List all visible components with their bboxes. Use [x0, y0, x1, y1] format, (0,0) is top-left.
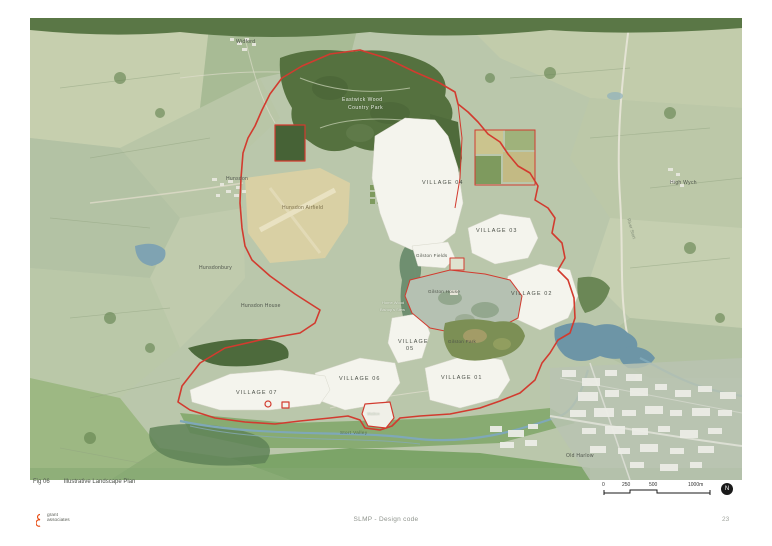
map-label-village-04: VILLAGE 04 [422, 181, 464, 187]
north-arrow-icon: N [721, 483, 733, 495]
map-label-village-03: VILLAGE 03 [476, 229, 518, 235]
northeast-farm-parcels [475, 130, 535, 185]
map-label-hunsdonbury: Hunsdonbury [199, 266, 232, 271]
map-label-village-05-line2: 05 [406, 347, 414, 353]
page-number: 23 [722, 516, 729, 523]
map-label-home-wood: Home Wood [382, 301, 404, 305]
logo-line2: associates [47, 518, 70, 523]
map-label-stort-valley: Stort Valley [340, 431, 367, 436]
map-label-hunsdon-airfield: Hunsdon Airfield [282, 206, 323, 211]
map-label-station: Station [367, 412, 379, 416]
map-label-country-park-1: Eastwick Wood [342, 98, 383, 103]
grant-associates-logo: grant associates [36, 513, 70, 527]
small-red-parcel [450, 258, 464, 270]
map-artwork [30, 18, 742, 480]
figure-title: Illustrative Landscape Plan [64, 479, 136, 485]
logo-mark-icon [36, 513, 45, 527]
map-label-gilston-fields: Gilston Fields [416, 254, 447, 259]
map-label-village-07: VILLAGE 07 [236, 391, 278, 397]
logo-text: grant associates [47, 513, 70, 524]
map-label-widford: Widford [236, 40, 255, 45]
footer-title: SLMP - Design code [0, 516, 772, 523]
figure-number: Fig 06 [33, 479, 50, 485]
map-label-village-05-line1: VILLAGE [398, 340, 429, 346]
map-label-bishops-stew: Bishop's Stew [380, 308, 405, 312]
figure-caption: Fig 06Illustrative Landscape Plan [33, 479, 135, 485]
scale-bar: 0 250 500 1000m [600, 482, 720, 498]
map-label-village-02: VILLAGE 02 [511, 292, 553, 298]
map-label-village-01: VILLAGE 01 [441, 376, 483, 382]
landscape-plan-map: Widford Hunsdon High Wych Hunsdon Airfie… [30, 18, 742, 480]
document-page: Widford Hunsdon High Wych Hunsdon Airfie… [0, 0, 772, 546]
map-label-gilston-house: Gilston House [428, 290, 460, 295]
map-label-old-harlow: Old Harlow [566, 454, 594, 459]
map-label-country-park-2: Country Park [348, 106, 383, 111]
map-label-high-wych: High Wych [670, 181, 697, 186]
map-label-hunsdon-house: Hunsdon House [241, 304, 281, 309]
map-label-gilston-park: Gilston Park [448, 340, 476, 345]
map-label-hunsdon: Hunsdon [226, 177, 248, 182]
wood-parcel-red [275, 125, 305, 161]
scale-bar-line [600, 488, 712, 496]
map-label-village-06: VILLAGE 06 [339, 377, 381, 383]
